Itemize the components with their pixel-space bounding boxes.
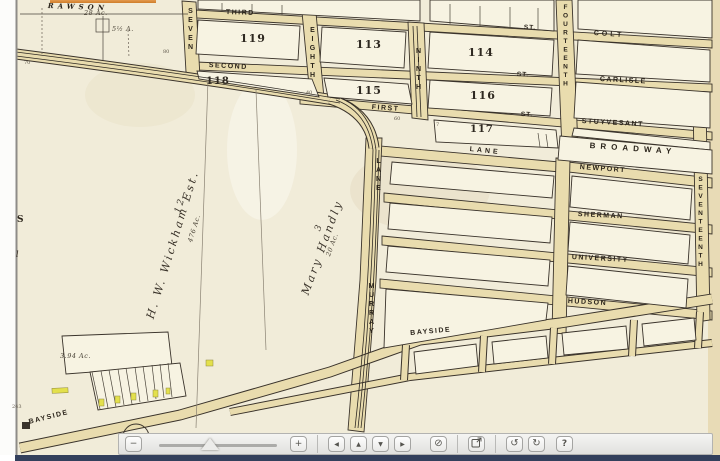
lot-number: 70 <box>24 60 30 66</box>
block-number-115: 115 <box>356 84 382 97</box>
help-button[interactable]: ? <box>556 436 573 452</box>
map-shape <box>153 390 158 397</box>
pan-left-button[interactable]: ◀ <box>328 436 345 452</box>
pan-down-button[interactable]: ▼ <box>372 436 389 452</box>
zoom-slider[interactable] <box>159 436 277 452</box>
map-shape <box>166 388 170 394</box>
pan-right-button[interactable]: ▶ <box>394 436 411 452</box>
toolbar-divider <box>457 435 458 453</box>
zoom-slider-handle[interactable] <box>201 438 219 450</box>
edge-letter-l: l <box>16 250 19 259</box>
fullscreen-button[interactable] <box>468 436 485 452</box>
street-label-st-2: ST. <box>517 71 530 79</box>
map-canvas[interactable] <box>0 0 720 455</box>
top-accent-bar <box>50 0 156 3</box>
lot-number: 60 <box>394 116 400 122</box>
street-label-murray-lane: LANE <box>373 158 383 194</box>
parcel-acreage-shore-lot: 3.94 Ac. <box>60 352 91 360</box>
lot-number: 7 <box>436 122 439 128</box>
fullscreen-icon <box>471 437 482 448</box>
block-number-116: 116 <box>470 89 496 102</box>
street-label-seventeenth: SEVENTEENTH <box>695 176 705 270</box>
street-label-seventh: SEVEN <box>185 8 195 53</box>
parcel-acreage-rawson: 28 Ac. <box>84 9 108 17</box>
map-shape <box>206 360 213 366</box>
lot-number: 40 <box>306 90 312 96</box>
toolbar-divider <box>495 435 496 453</box>
toolbar-divider <box>317 435 318 453</box>
zoom-in-button[interactable]: + <box>290 436 307 452</box>
street-label-st-3: ST. <box>521 111 534 119</box>
street-label-fourteenth: FOURTEENTH <box>560 4 570 89</box>
page-footer-bar <box>15 455 720 461</box>
block-number-113: 113 <box>356 38 382 51</box>
street-label-ninth: NINTH <box>413 48 423 93</box>
map-shape <box>99 399 104 406</box>
zoom-out-button[interactable]: − <box>125 436 142 452</box>
rotate-cw-button[interactable]: ↻ <box>528 436 545 452</box>
street-label-murray: MURRAY <box>366 283 376 337</box>
street-label-third: THIRD <box>226 9 255 17</box>
reset-view-button[interactable]: ⊘ <box>430 436 447 452</box>
pan-up-button[interactable]: ▲ <box>350 436 367 452</box>
map-shape <box>52 388 68 394</box>
map-shape <box>115 396 120 403</box>
street-label-st-1: ST. <box>524 24 537 32</box>
map-shape <box>227 80 297 220</box>
sheet-margin <box>0 0 16 455</box>
block-number-114: 114 <box>468 46 494 59</box>
rotate-ccw-button[interactable]: ↺ <box>506 436 523 452</box>
street-label-eighth: EIGHTH <box>307 27 317 81</box>
block-number-117: 117 <box>470 124 494 135</box>
lot-number: 243 <box>12 404 22 410</box>
map-shape <box>131 393 136 400</box>
edge-letter-s: S <box>17 215 24 225</box>
parcel-acreage-small: 5½ A. <box>112 25 134 33</box>
map-viewer: RAWSON 28 Ac. 5½ A. THIRD SECOND FIRST S… <box>0 0 720 461</box>
lot-number: 80 <box>163 49 169 55</box>
viewer-toolbar: − + ◀ ▲ ▼ ▶ ⊘ ↺ ↻ ? <box>118 433 713 455</box>
block-number-118: 118 <box>206 76 230 87</box>
block-number-119: 119 <box>240 32 266 45</box>
